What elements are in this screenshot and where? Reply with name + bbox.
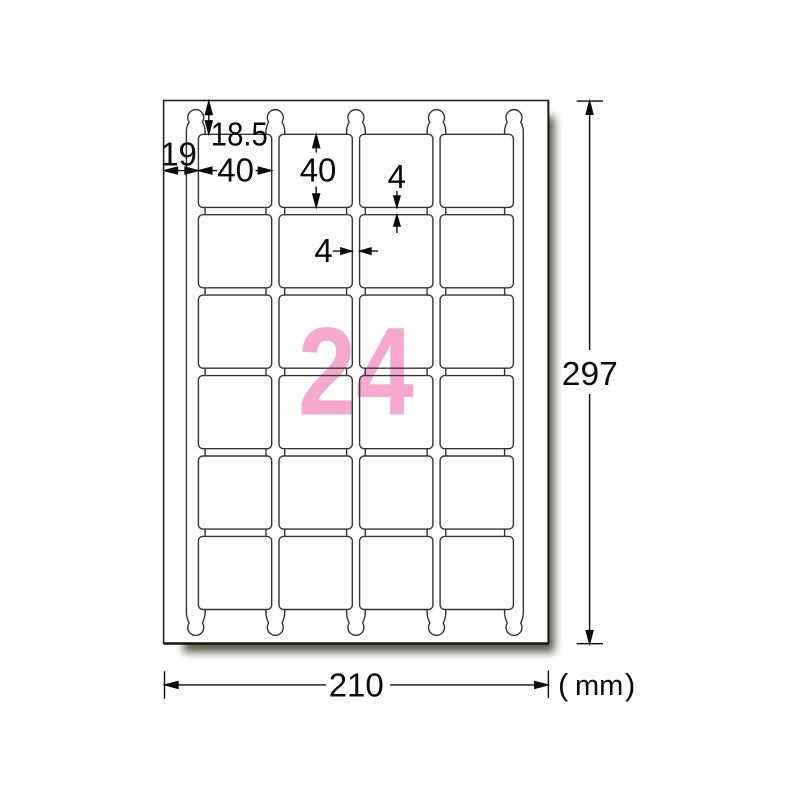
svg-text:mm: mm — [575, 670, 623, 702]
svg-text:297: 297 — [562, 355, 618, 392]
svg-text:): ) — [625, 667, 635, 702]
svg-text:4: 4 — [314, 232, 332, 269]
svg-text:19: 19 — [160, 135, 197, 172]
svg-text:18.5: 18.5 — [211, 115, 268, 152]
svg-text:40: 40 — [217, 151, 254, 188]
svg-text:(: ( — [558, 667, 569, 702]
svg-text:40: 40 — [300, 151, 337, 188]
svg-text:210: 210 — [329, 666, 384, 703]
svg-text:4: 4 — [388, 158, 406, 195]
svg-text:24: 24 — [298, 303, 414, 442]
